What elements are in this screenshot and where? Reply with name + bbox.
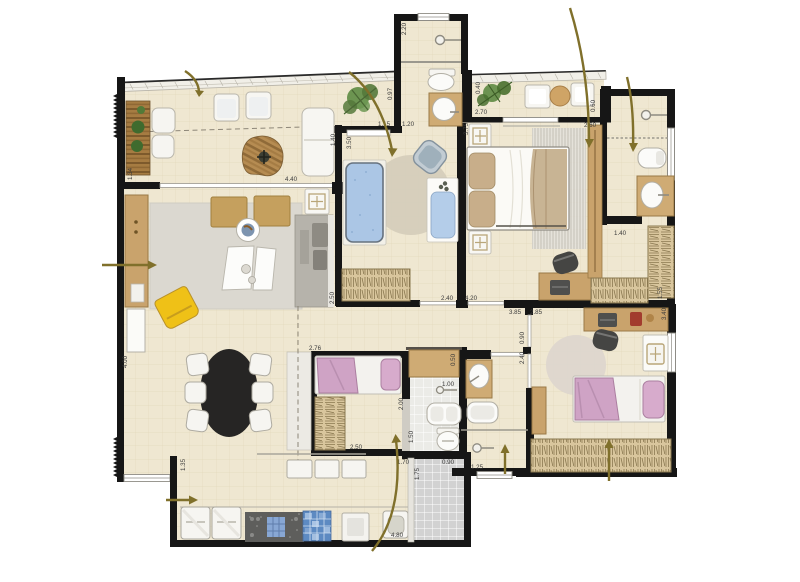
svg-text:1.34: 1.34 xyxy=(127,167,134,180)
svg-text:0.90: 0.90 xyxy=(442,459,455,466)
svg-text:4.40: 4.40 xyxy=(285,176,298,183)
svg-text:1.20: 1.20 xyxy=(402,121,415,128)
svg-text:4.00: 4.00 xyxy=(122,355,129,368)
svg-text:0.40: 0.40 xyxy=(475,81,482,94)
svg-text:1.40: 1.40 xyxy=(614,230,627,237)
svg-text:2.00: 2.00 xyxy=(398,397,405,410)
svg-text:1.25: 1.25 xyxy=(471,464,484,471)
svg-text:3.75: 3.75 xyxy=(463,122,470,135)
svg-text:2.85: 2.85 xyxy=(530,309,543,316)
svg-text:2.70: 2.70 xyxy=(475,109,488,116)
svg-text:2.40: 2.40 xyxy=(441,295,454,302)
svg-text:2.40: 2.40 xyxy=(519,351,526,364)
svg-text:0.50: 0.50 xyxy=(450,353,457,366)
svg-text:3.85: 3.85 xyxy=(509,309,522,316)
svg-text:1.55: 1.55 xyxy=(657,286,664,299)
svg-text:2.20: 2.20 xyxy=(401,22,408,35)
svg-text:1.50: 1.50 xyxy=(408,430,415,443)
svg-text:0.60: 0.60 xyxy=(590,99,597,112)
svg-text:3.40: 3.40 xyxy=(661,307,668,320)
svg-text:4.80: 4.80 xyxy=(391,532,404,539)
svg-text:2.50: 2.50 xyxy=(329,291,336,304)
svg-text:2.60: 2.60 xyxy=(584,122,597,129)
svg-text:1.75: 1.75 xyxy=(414,467,421,480)
svg-text:2.76: 2.76 xyxy=(309,345,322,352)
svg-text:1.40: 1.40 xyxy=(330,133,337,146)
svg-text:1.35: 1.35 xyxy=(180,458,187,471)
svg-text:0.90: 0.90 xyxy=(519,331,526,344)
svg-text:0.97: 0.97 xyxy=(387,87,394,100)
svg-text:1.00: 1.00 xyxy=(442,381,455,388)
svg-text:1.70: 1.70 xyxy=(397,459,410,466)
svg-text:4.20: 4.20 xyxy=(465,295,478,302)
svg-text:2.50: 2.50 xyxy=(350,444,363,451)
svg-text:3.50: 3.50 xyxy=(346,136,353,149)
